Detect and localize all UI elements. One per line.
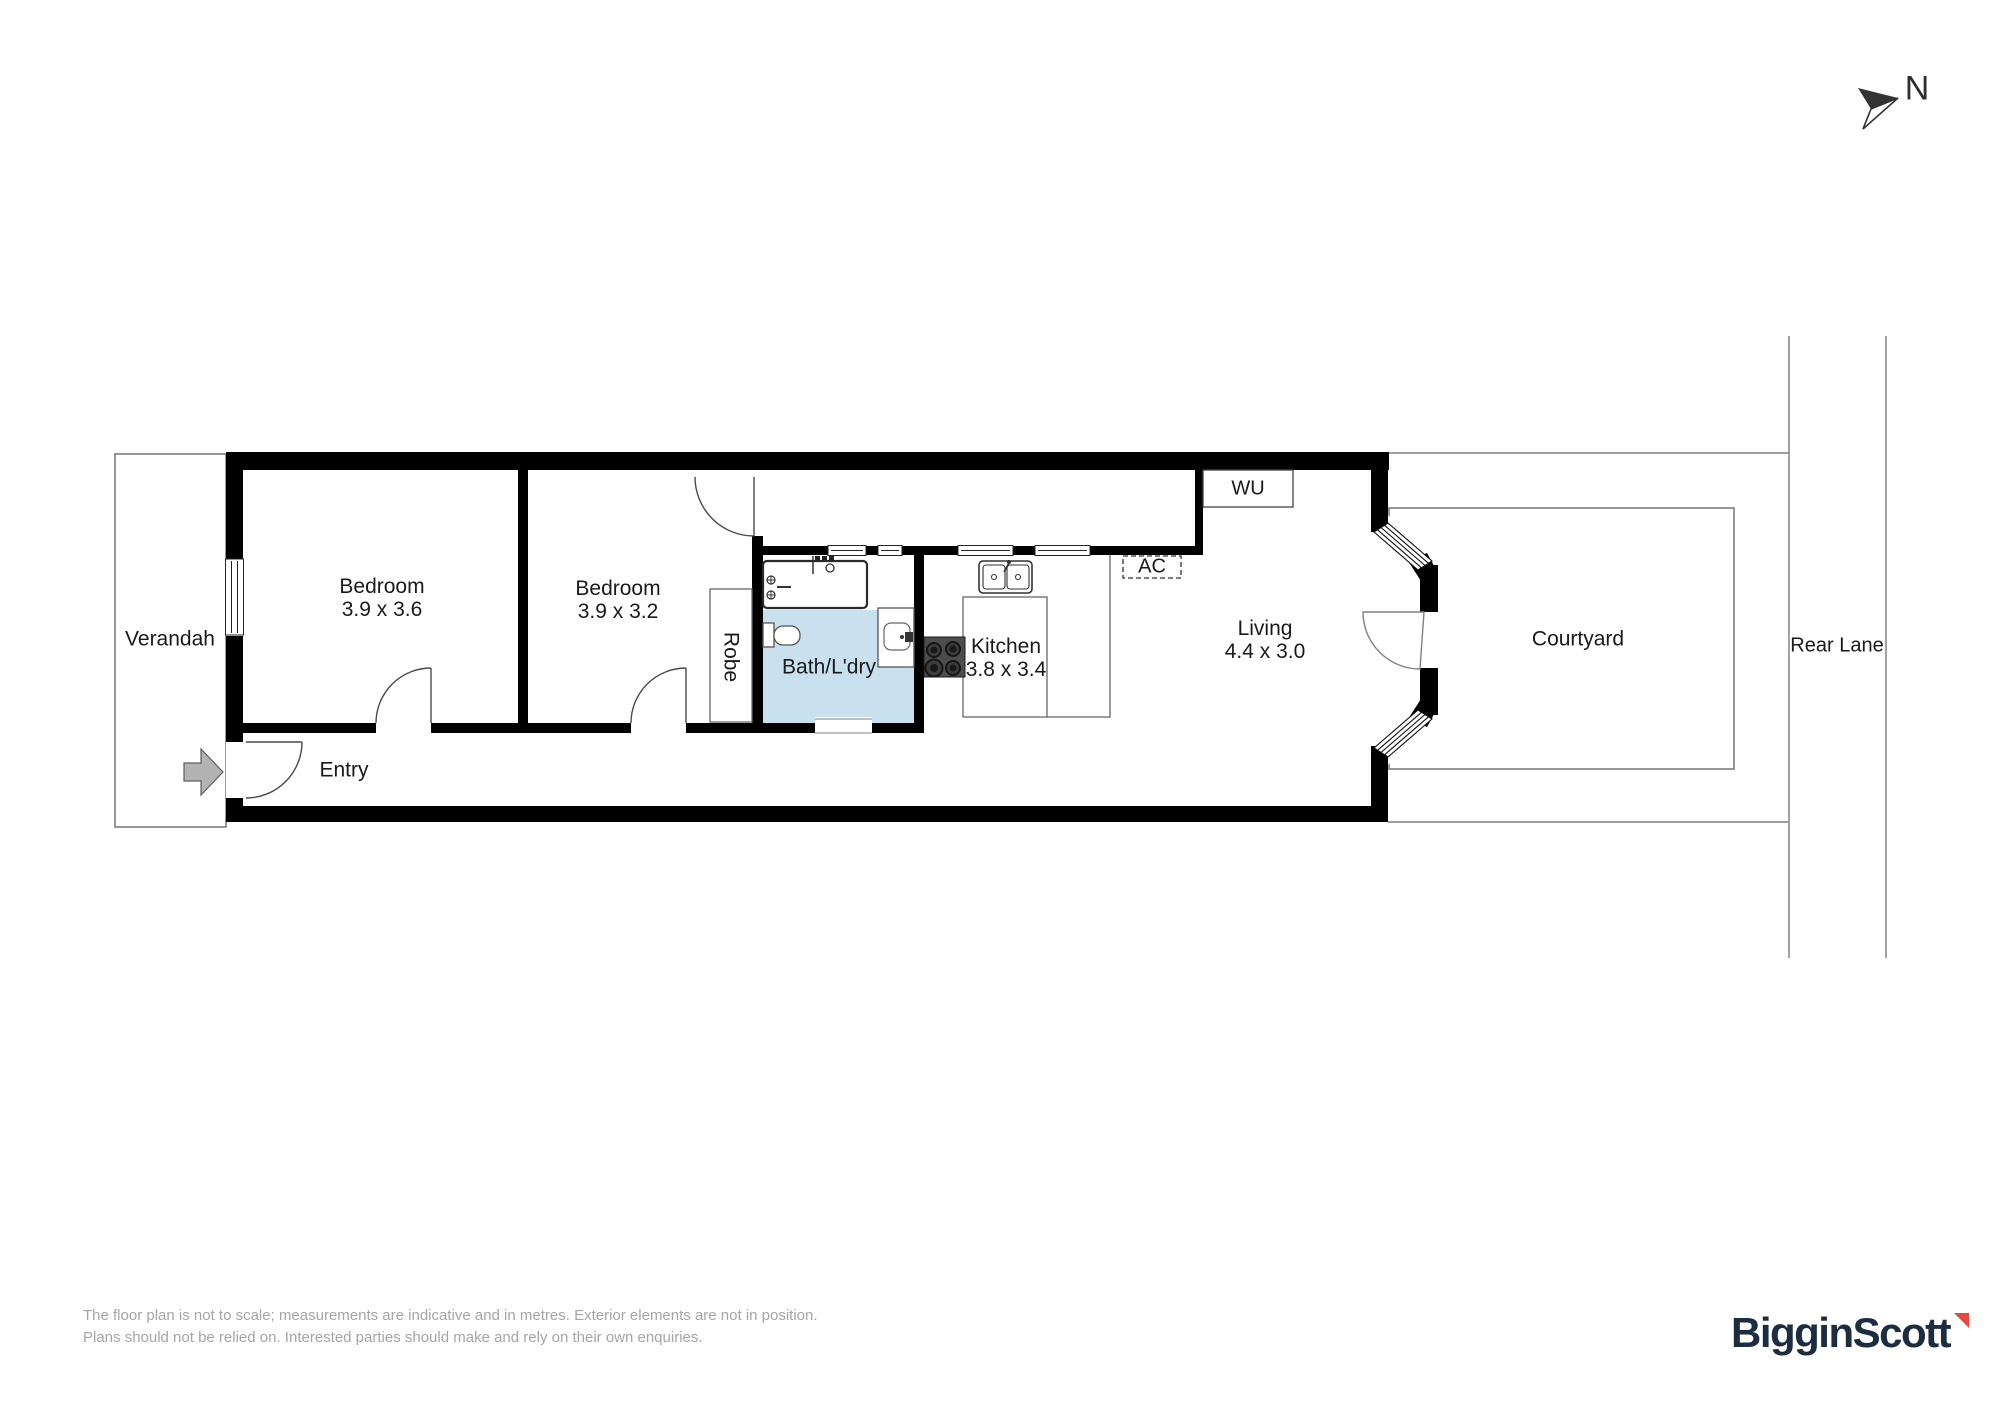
window-icon-verandah — [226, 559, 244, 635]
wall-kitchen-north-c — [1090, 546, 1195, 555]
wall-bath-west — [752, 536, 763, 723]
disclaimer-line-1: The floor plan is not to scale; measurem… — [83, 1305, 818, 1327]
brand-logo: BigginScott — [1731, 1309, 1950, 1357]
wall-hall-d — [872, 723, 924, 733]
living-dims: 4.4 x 3.0 — [1225, 640, 1306, 663]
wu-label: WU — [1231, 478, 1264, 501]
entry-label: Entry — [319, 759, 368, 782]
wall-bath-east — [914, 555, 924, 723]
living-label: Living 4.4 x 3.0 — [1225, 617, 1306, 663]
wall-west-mid — [226, 636, 243, 742]
brand-red-triangle-icon — [1954, 1313, 1969, 1328]
floor-plan-drawing — [0, 0, 2000, 1414]
courtyard-label: Courtyard — [1532, 628, 1624, 651]
wall-kitchen-north-b — [1013, 546, 1035, 555]
bedroom1-name: Bedroom — [339, 575, 424, 598]
north-label: N — [1905, 70, 1930, 109]
wall-hall-c — [686, 723, 815, 733]
kitchen-sink-icon — [979, 560, 1032, 593]
floor-plan-page: Verandah Bedroom 3.9 x 3.6 Bedroom 3.9 x… — [0, 0, 2000, 1414]
window-icon-bath-2 — [878, 546, 902, 556]
living-name: Living — [1225, 617, 1306, 640]
bathtub-icon — [763, 556, 867, 608]
disclaimer-line-2: Plans should not be relied on. Intereste… — [83, 1327, 818, 1349]
verandah-label: Verandah — [125, 628, 215, 651]
bedroom2-name: Bedroom — [575, 577, 660, 600]
wall-east-lower — [1371, 746, 1388, 822]
window-icon-kitchen-1 — [958, 546, 1013, 556]
bedroom2-label: Bedroom 3.9 x 3.2 — [575, 577, 660, 623]
kitchen-dims: 3.8 x 3.4 — [966, 658, 1047, 681]
wall-hall-b — [431, 723, 631, 733]
wall-south — [226, 806, 1388, 822]
toilet-icon — [763, 623, 800, 647]
disclaimer-text: The floor plan is not to scale; measurem… — [83, 1305, 818, 1349]
robe-label: Robe — [720, 632, 743, 682]
bath-opening — [815, 717, 872, 734]
window-icon-kitchen-2 — [1035, 546, 1090, 556]
wall-west-upper — [226, 452, 243, 559]
wall-bedroom-divider — [518, 470, 528, 723]
bedroom1-label: Bedroom 3.9 x 3.6 — [339, 575, 424, 621]
kitchen-name: Kitchen — [966, 635, 1047, 658]
wall-kitchen-north-a — [902, 546, 958, 555]
bedroom2-dims: 3.9 x 3.2 — [575, 600, 660, 623]
rear-lane-label: Rear Lane — [1790, 635, 1883, 658]
vanity-basin-icon — [878, 608, 914, 667]
bath-laundry-label: Bath/L'dry — [782, 656, 876, 679]
kitchen-label: Kitchen 3.8 x 3.4 — [966, 635, 1047, 681]
north-arrow-icon — [1858, 88, 1898, 129]
cooktop-icon — [924, 637, 965, 677]
wall-hall-a — [243, 723, 376, 733]
wall-passage-stub — [1195, 470, 1203, 555]
bedroom1-dims: 3.9 x 3.6 — [339, 598, 424, 621]
wall-east-upper — [1371, 452, 1388, 532]
ac-label: AC — [1138, 556, 1166, 579]
wall-bath-north-b — [866, 546, 878, 555]
window-icon-bath-1 — [828, 546, 866, 556]
wall-north — [226, 452, 1389, 470]
wall-bath-north-a — [752, 546, 828, 555]
